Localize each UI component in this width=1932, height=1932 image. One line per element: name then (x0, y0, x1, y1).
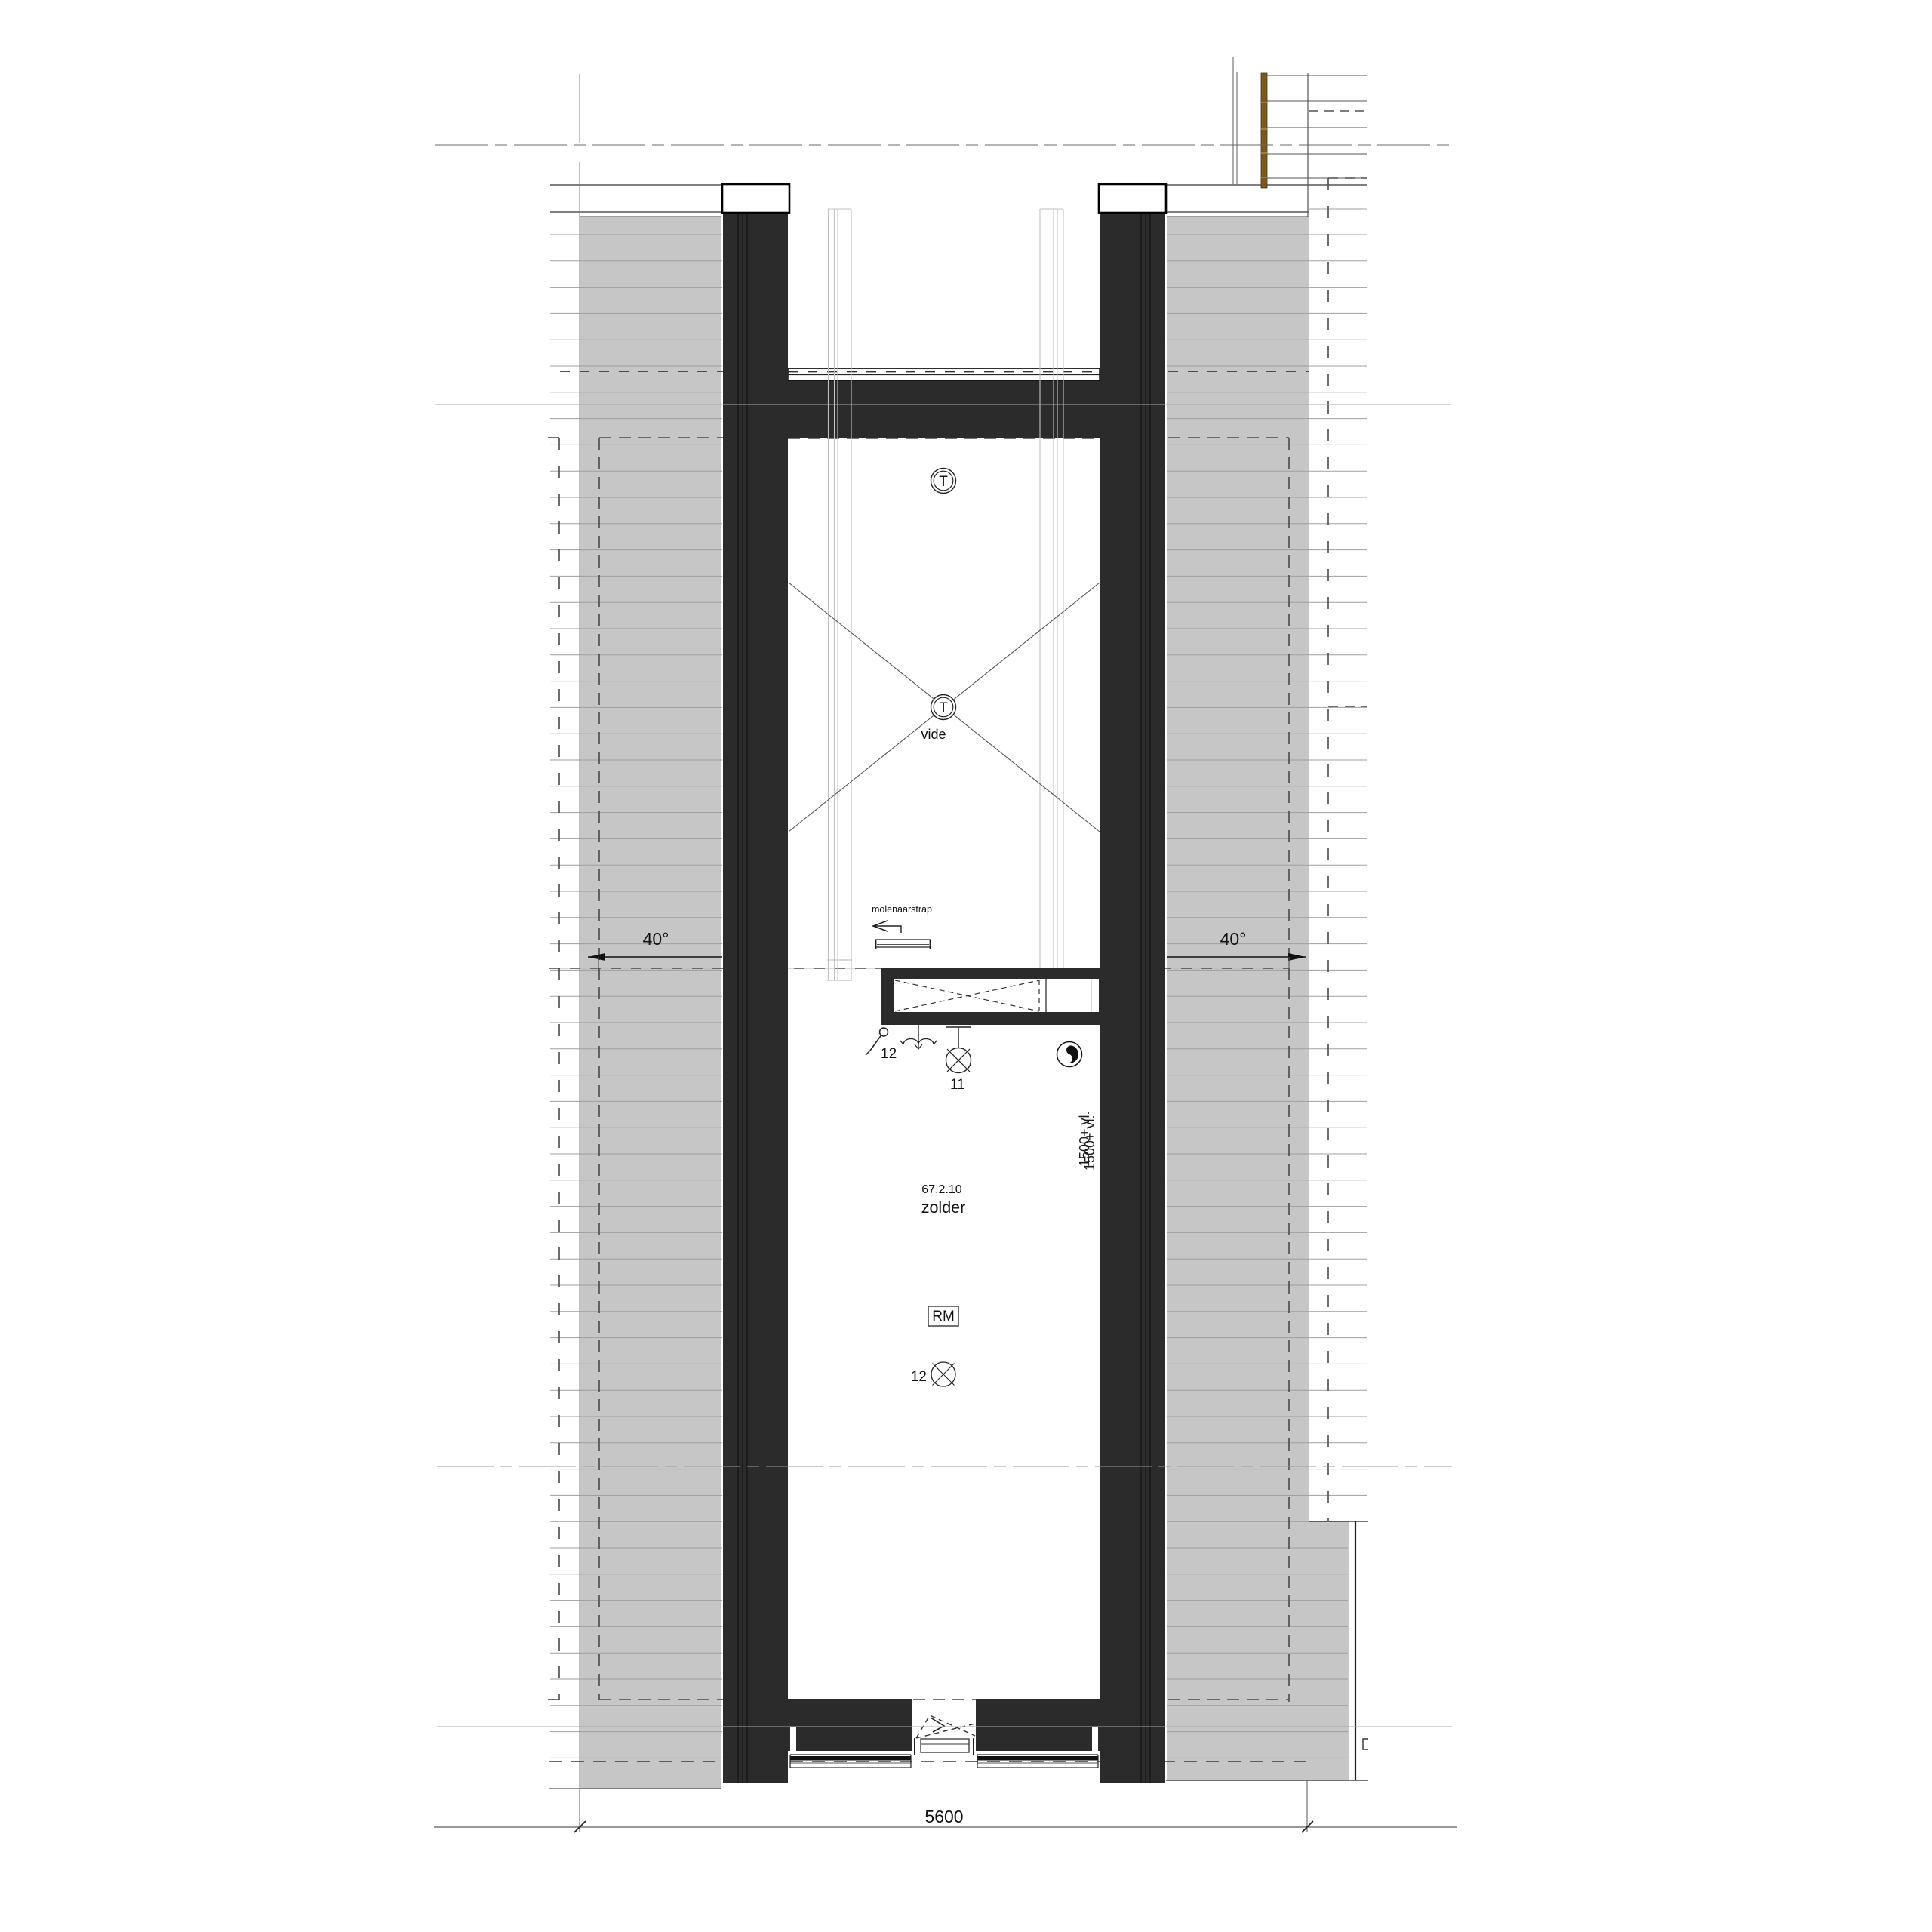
svg-text:12: 12 (911, 1369, 927, 1385)
svg-text:12: 12 (881, 1046, 897, 1062)
svg-text:67.2.10: 67.2.10 (921, 1183, 961, 1196)
svg-text:11: 11 (950, 1077, 965, 1093)
svg-text:zolder: zolder (921, 1198, 966, 1217)
svg-text:RM: RM (932, 1309, 955, 1324)
svg-text:T: T (939, 474, 948, 490)
svg-text:molenaarstrap: molenaarstrap (872, 904, 932, 915)
svg-text:40°: 40° (1220, 929, 1247, 949)
svg-text:40°: 40° (643, 929, 669, 949)
svg-text:5600: 5600 (924, 1807, 963, 1826)
svg-text:1500+ vl.: 1500+ vl. (1077, 1111, 1092, 1167)
svg-text:T: T (939, 700, 948, 716)
svg-text:vide: vide (921, 727, 946, 742)
